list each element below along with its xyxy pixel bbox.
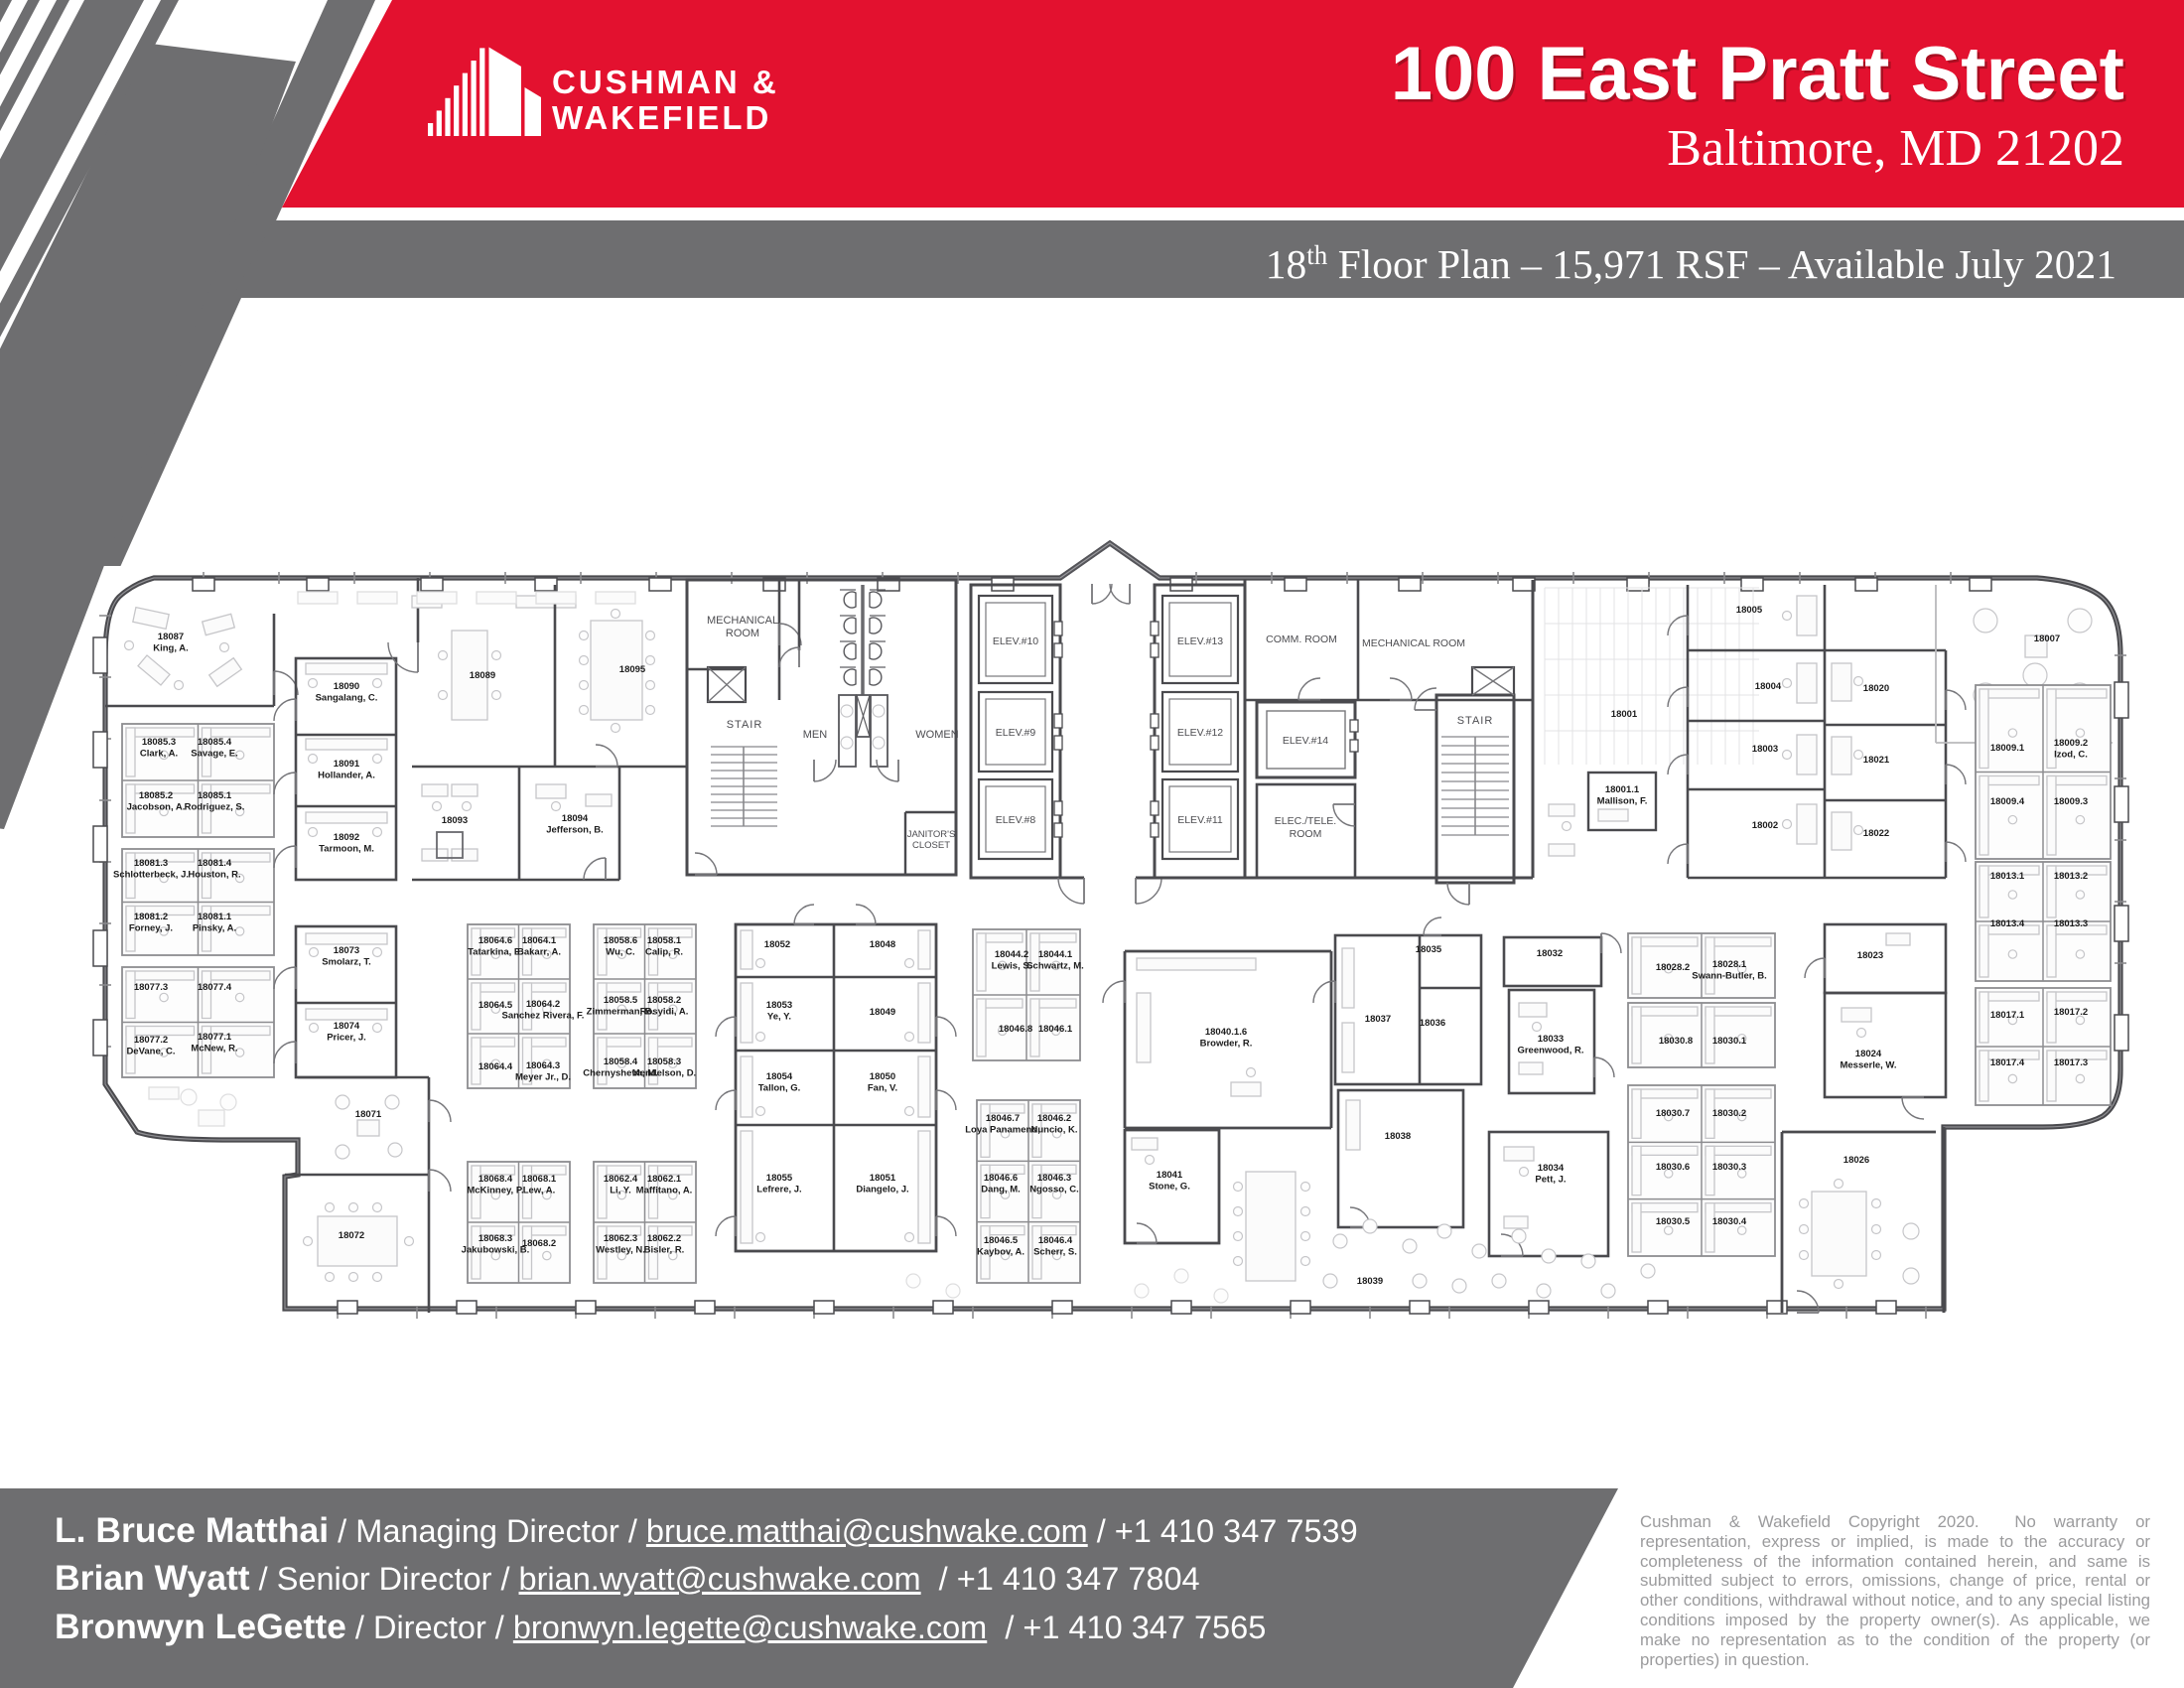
svg-text:Rodriguez, S.: Rodriguez, S. — [185, 802, 245, 813]
svg-text:Maffitano, A.: Maffitano, A. — [636, 1186, 693, 1196]
svg-text:18091: 18091 — [334, 759, 360, 770]
svg-text:JANITOR'S: JANITOR'S — [907, 829, 956, 840]
svg-text:18037: 18037 — [1365, 1014, 1391, 1025]
svg-text:100 East Pratt Street: 100 East Pratt Street — [1391, 32, 2124, 116]
svg-text:18030.8: 18030.8 — [1659, 1036, 1693, 1047]
svg-text:WAKEFIELD: WAKEFIELD — [552, 99, 771, 136]
svg-text:18046.5: 18046.5 — [984, 1235, 1019, 1246]
svg-text:Lefrere, J.: Lefrere, J. — [756, 1185, 801, 1196]
svg-text:18036: 18036 — [1420, 1018, 1445, 1029]
svg-text:18058.2: 18058.2 — [647, 995, 681, 1006]
svg-text:18009.2: 18009.2 — [2054, 738, 2088, 749]
svg-text:Bisler, R.: Bisler, R. — [644, 1245, 685, 1256]
svg-text:18062.3: 18062.3 — [604, 1233, 637, 1244]
svg-text:18072: 18072 — [339, 1230, 364, 1241]
svg-text:18030.6: 18030.6 — [1656, 1162, 1690, 1173]
svg-text:18046.2: 18046.2 — [1037, 1113, 1071, 1124]
svg-text:18046.3: 18046.3 — [1037, 1173, 1071, 1184]
svg-text:18003: 18003 — [1752, 744, 1778, 755]
svg-text:18028.1: 18028.1 — [1712, 959, 1747, 970]
svg-text:Dang, M.: Dang, M. — [981, 1185, 1021, 1196]
svg-text:18055: 18055 — [766, 1173, 793, 1184]
svg-text:18009.4: 18009.4 — [1990, 796, 2025, 807]
svg-text:18013.4: 18013.4 — [1990, 918, 2025, 929]
svg-text:18064.4: 18064.4 — [478, 1061, 513, 1072]
svg-text:CUSHMAN &: CUSHMAN & — [552, 64, 779, 100]
svg-text:18009.3: 18009.3 — [2054, 796, 2088, 807]
svg-text:Mendelson, D.: Mendelson, D. — [632, 1068, 696, 1079]
svg-text:18068.1: 18068.1 — [522, 1174, 557, 1185]
svg-text:18005: 18005 — [1736, 605, 1763, 616]
svg-text:18004: 18004 — [1755, 681, 1782, 692]
svg-text:18050: 18050 — [870, 1071, 895, 1082]
svg-text:ROOM: ROOM — [726, 628, 759, 639]
svg-text:Scherr, S.: Scherr, S. — [1033, 1247, 1077, 1258]
svg-text:18077.1: 18077.1 — [198, 1032, 232, 1043]
svg-text:18026: 18026 — [1843, 1155, 1869, 1166]
svg-text:18022: 18022 — [1863, 828, 1889, 839]
svg-text:18013.1: 18013.1 — [1990, 871, 2025, 882]
svg-text:Schlotterbeck, J.: Schlotterbeck, J. — [113, 870, 189, 881]
svg-text:18051: 18051 — [870, 1173, 896, 1184]
svg-text:MECHANICAL: MECHANICAL — [707, 615, 778, 627]
svg-text:ROOM: ROOM — [1290, 828, 1322, 840]
svg-text:18017.2: 18017.2 — [2054, 1007, 2088, 1018]
svg-text:18044.1: 18044.1 — [1038, 949, 1073, 960]
svg-text:18064.5: 18064.5 — [478, 1000, 513, 1011]
svg-text:18035: 18035 — [1416, 944, 1442, 955]
svg-text:18th Floor Plan – 15,971 RSF –: 18th Floor Plan – 15,971 RSF – Available… — [1266, 240, 2116, 287]
svg-text:18017.3: 18017.3 — [2054, 1057, 2088, 1068]
svg-text:ELEV.#12: ELEV.#12 — [1177, 727, 1223, 739]
svg-text:18053: 18053 — [766, 1000, 792, 1011]
svg-text:Jacobson, A.: Jacobson, A. — [127, 802, 186, 813]
svg-text:Sangalang, C.: Sangalang, C. — [316, 693, 378, 704]
svg-text:18092: 18092 — [334, 832, 359, 843]
svg-text:King, A.: King, A. — [153, 643, 189, 654]
svg-text:18048: 18048 — [870, 939, 895, 950]
svg-text:18074: 18074 — [334, 1021, 360, 1032]
svg-text:ELEV.#14: ELEV.#14 — [1283, 735, 1328, 747]
svg-text:18085.3: 18085.3 — [142, 737, 176, 748]
svg-text:18085.4: 18085.4 — [198, 737, 232, 748]
svg-text:Diangelo, J.: Diangelo, J. — [856, 1185, 908, 1196]
svg-text:Sanchez Rivera, F.: Sanchez Rivera, F. — [502, 1011, 585, 1022]
svg-text:Tatarkina, E.: Tatarkina, E. — [468, 947, 523, 958]
svg-text:18007: 18007 — [2034, 633, 2060, 644]
svg-text:18068.3: 18068.3 — [478, 1233, 512, 1244]
svg-text:18030.5: 18030.5 — [1656, 1216, 1691, 1227]
svg-text:MEN: MEN — [803, 729, 828, 741]
svg-text:18033: 18033 — [1538, 1034, 1564, 1045]
svg-text:18028.2: 18028.2 — [1656, 962, 1690, 973]
svg-text:Stone, G.: Stone, G. — [1149, 1182, 1190, 1193]
svg-text:STAIR: STAIR — [1457, 715, 1494, 727]
svg-text:18001: 18001 — [1611, 709, 1638, 720]
svg-text:18044.2: 18044.2 — [995, 949, 1028, 960]
svg-text:Rosyidi, A.: Rosyidi, A. — [640, 1007, 689, 1018]
svg-text:18058.3: 18058.3 — [647, 1056, 681, 1067]
svg-text:MECHANICAL ROOM: MECHANICAL ROOM — [1362, 637, 1465, 649]
svg-text:ELEC./TELE.: ELEC./TELE. — [1275, 815, 1336, 827]
svg-text:DeVane, C.: DeVane, C. — [126, 1047, 175, 1057]
svg-text:Mallison, F.: Mallison, F. — [1597, 796, 1648, 807]
svg-text:18046.6: 18046.6 — [984, 1173, 1018, 1184]
svg-text:Loya Panameno,: Loya Panameno, — [965, 1125, 1040, 1136]
svg-text:18046.7: 18046.7 — [986, 1113, 1020, 1124]
svg-text:18021: 18021 — [1863, 755, 1890, 766]
svg-text:ELEV.#9: ELEV.#9 — [996, 727, 1036, 739]
svg-text:18038: 18038 — [1385, 1131, 1411, 1142]
svg-text:18046.8: 18046.8 — [999, 1024, 1032, 1035]
svg-text:Lew, A.: Lew, A. — [523, 1186, 556, 1196]
svg-text:18013.3: 18013.3 — [2054, 918, 2088, 929]
svg-text:Meyer Jr., D.: Meyer Jr., D. — [515, 1072, 571, 1083]
svg-text:18058.4: 18058.4 — [604, 1056, 638, 1067]
svg-text:Fan, V.: Fan, V. — [868, 1083, 897, 1094]
svg-text:Smolarz, T.: Smolarz, T. — [322, 957, 371, 968]
svg-text:18034: 18034 — [1538, 1163, 1565, 1174]
svg-text:18046.1: 18046.1 — [1038, 1024, 1073, 1035]
svg-text:18068.4: 18068.4 — [478, 1174, 513, 1185]
svg-text:18017.4: 18017.4 — [1990, 1057, 2025, 1068]
svg-text:Pricer, J.: Pricer, J. — [327, 1033, 366, 1044]
svg-text:18081.3: 18081.3 — [134, 858, 168, 869]
svg-text:18062.4: 18062.4 — [604, 1174, 638, 1185]
svg-text:18002: 18002 — [1752, 820, 1778, 831]
svg-text:18077.2: 18077.2 — [134, 1035, 168, 1046]
svg-text:Savage, E.: Savage, E. — [191, 749, 238, 760]
svg-text:18085.2: 18085.2 — [139, 790, 173, 801]
svg-text:Ngosso, C.: Ngosso, C. — [1029, 1185, 1079, 1196]
svg-text:18058.6: 18058.6 — [604, 935, 637, 946]
svg-text:Pett, J.: Pett, J. — [1535, 1175, 1566, 1186]
svg-text:18064.1: 18064.1 — [522, 935, 557, 946]
svg-text:McKinney, P.: McKinney, P. — [467, 1186, 523, 1196]
svg-text:18058.1: 18058.1 — [647, 935, 682, 946]
svg-text:Pinsky, A.: Pinsky, A. — [193, 923, 236, 934]
svg-text:18020: 18020 — [1863, 683, 1889, 694]
svg-text:ELEV.#10: ELEV.#10 — [993, 635, 1038, 647]
svg-text:Li, Y.: Li, Y. — [610, 1186, 630, 1196]
svg-text:18046.4: 18046.4 — [1038, 1235, 1073, 1246]
svg-text:18009.1: 18009.1 — [1990, 743, 2025, 754]
svg-text:18081.1: 18081.1 — [198, 912, 232, 922]
svg-text:18081.4: 18081.4 — [198, 858, 232, 869]
svg-text:ELEV.#13: ELEV.#13 — [1177, 635, 1223, 647]
svg-text:18064.6: 18064.6 — [478, 935, 512, 946]
svg-text:18064.2: 18064.2 — [526, 999, 560, 1010]
svg-text:Baltimore, MD 21202: Baltimore, MD 21202 — [1667, 120, 2124, 177]
svg-text:ELEV.#11: ELEV.#11 — [1177, 814, 1223, 826]
svg-text:18023: 18023 — [1857, 950, 1883, 961]
svg-text:18087: 18087 — [158, 632, 184, 642]
svg-text:18030.3: 18030.3 — [1712, 1162, 1746, 1173]
svg-text:Jakubowski, B.: Jakubowski, B. — [462, 1245, 530, 1256]
svg-text:Schwartz, M.: Schwartz, M. — [1026, 961, 1084, 972]
svg-text:18052: 18052 — [764, 939, 790, 950]
svg-text:Bakarr, A.: Bakarr, A. — [517, 947, 561, 958]
svg-text:STAIR: STAIR — [727, 719, 763, 731]
svg-text:WOMEN: WOMEN — [915, 729, 958, 741]
svg-text:18089: 18089 — [470, 670, 495, 681]
svg-text:18081.2: 18081.2 — [134, 912, 168, 922]
svg-text:Houston, R.: Houston, R. — [188, 870, 240, 881]
svg-text:18062.1: 18062.1 — [647, 1174, 682, 1185]
svg-text:Izod, C.: Izod, C. — [2054, 750, 2088, 761]
svg-text:Westley, N.: Westley, N. — [596, 1245, 645, 1256]
svg-text:Hollander, A.: Hollander, A. — [318, 771, 375, 781]
svg-text:Calip, R.: Calip, R. — [645, 947, 683, 958]
svg-text:Kaybov, A.: Kaybov, A. — [977, 1247, 1024, 1258]
svg-text:McNew, R.: McNew, R. — [191, 1044, 237, 1055]
svg-text:Forney, J.: Forney, J. — [129, 923, 173, 934]
svg-text:18058.5: 18058.5 — [604, 995, 638, 1006]
svg-text:Lewis, S.: Lewis, S. — [992, 961, 1032, 972]
svg-text:18071: 18071 — [355, 1109, 382, 1120]
svg-text:18094: 18094 — [562, 813, 589, 824]
svg-text:18030.7: 18030.7 — [1656, 1108, 1690, 1119]
svg-text:18013.2: 18013.2 — [2054, 871, 2088, 882]
svg-text:Clark, A.: Clark, A. — [140, 749, 178, 760]
svg-text:Nuncio, K.: Nuncio, K. — [1031, 1125, 1078, 1136]
svg-text:Swann-Butler, B.: Swann-Butler, B. — [1692, 971, 1766, 982]
svg-text:18090: 18090 — [334, 681, 359, 692]
svg-text:18068.2: 18068.2 — [522, 1238, 556, 1249]
svg-text:18095: 18095 — [619, 664, 646, 675]
svg-text:18073: 18073 — [334, 945, 359, 956]
svg-text:18039: 18039 — [1357, 1276, 1383, 1287]
svg-text:Tallon, G.: Tallon, G. — [758, 1083, 801, 1094]
svg-text:18085.1: 18085.1 — [198, 790, 232, 801]
svg-text:Browder, R.: Browder, R. — [1200, 1039, 1253, 1050]
svg-text:18030.4: 18030.4 — [1712, 1216, 1747, 1227]
svg-text:18040.1.6: 18040.1.6 — [1205, 1027, 1247, 1038]
svg-text:CLOSET: CLOSET — [912, 840, 950, 851]
svg-text:18030.1: 18030.1 — [1712, 1036, 1747, 1047]
svg-text:18001.1: 18001.1 — [1605, 784, 1640, 795]
svg-text:Ye, Y.: Ye, Y. — [767, 1012, 791, 1023]
svg-text:18077.4: 18077.4 — [198, 982, 232, 993]
svg-text:Wu, C.: Wu, C. — [606, 947, 634, 958]
svg-text:18030.2: 18030.2 — [1712, 1108, 1746, 1119]
svg-text:18032: 18032 — [1537, 948, 1563, 959]
svg-text:Messerle, W.: Messerle, W. — [1840, 1060, 1896, 1071]
svg-text:ELEV.#8: ELEV.#8 — [996, 814, 1036, 826]
svg-text:Jefferson, B.: Jefferson, B. — [546, 825, 604, 836]
svg-text:18024: 18024 — [1855, 1049, 1882, 1059]
svg-text:18017.1: 18017.1 — [1990, 1010, 2025, 1021]
svg-text:18093: 18093 — [442, 815, 468, 826]
svg-text:Greenwood, R.: Greenwood, R. — [1517, 1046, 1583, 1056]
svg-text:18041: 18041 — [1157, 1170, 1183, 1181]
svg-text:18077.3: 18077.3 — [134, 982, 168, 993]
svg-text:COMM. ROOM: COMM. ROOM — [1266, 633, 1337, 645]
svg-text:18064.3: 18064.3 — [526, 1060, 560, 1071]
svg-text:18049: 18049 — [870, 1007, 895, 1018]
svg-text:18054: 18054 — [766, 1071, 793, 1082]
svg-text:Tarmoon, M.: Tarmoon, M. — [319, 844, 374, 855]
svg-text:18062.2: 18062.2 — [647, 1233, 681, 1244]
